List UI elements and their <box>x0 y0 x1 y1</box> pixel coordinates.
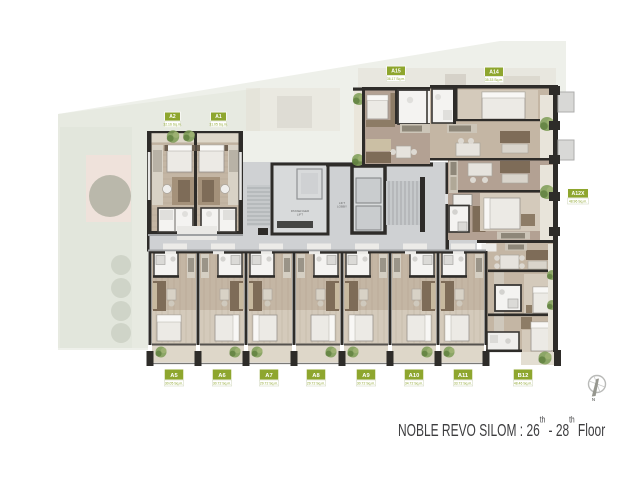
svg-text:N: N <box>592 397 596 403</box>
svg-text:LIFT: LIFT <box>297 213 303 217</box>
svg-text:36.17 Sq.m.: 36.17 Sq.m. <box>387 77 405 81</box>
svg-text:A7: A7 <box>265 373 272 379</box>
svg-text:A9: A9 <box>362 373 370 379</box>
svg-text:A11: A11 <box>458 373 469 379</box>
svg-text:29.72 Sq.m.: 29.72 Sq.m. <box>260 382 278 386</box>
svg-text:48.96 Sq.m.: 48.96 Sq.m. <box>569 200 587 204</box>
svg-text:30.72 Sq.m.: 30.72 Sq.m. <box>357 382 375 386</box>
svg-text:LOBBY: LOBBY <box>337 205 347 209</box>
svg-text:33.72 Sq.m.: 33.72 Sq.m. <box>454 382 472 386</box>
svg-text:NOBLE REVO SILOM : 26th - 28th: NOBLE REVO SILOM : 26th - 28th Floor <box>398 415 605 441</box>
svg-text:A15: A15 <box>391 69 401 75</box>
svg-text:34.72 Sq.m.: 34.72 Sq.m. <box>405 382 423 386</box>
svg-text:32.16 Sq.m.: 32.16 Sq.m. <box>163 123 181 127</box>
svg-text:A12X: A12X <box>572 191 586 197</box>
svg-text:A2: A2 <box>169 114 176 120</box>
svg-text:29.72 Sq.m.: 29.72 Sq.m. <box>307 382 325 386</box>
svg-text:A14: A14 <box>489 70 499 76</box>
svg-text:A8: A8 <box>312 373 320 379</box>
svg-text:A5: A5 <box>170 373 178 379</box>
svg-text:48.46 Sq.m.: 48.46 Sq.m. <box>514 382 532 386</box>
svg-text:A1: A1 <box>215 114 222 120</box>
svg-text:A6: A6 <box>218 373 226 379</box>
svg-text:B12: B12 <box>518 373 529 379</box>
svg-text:30.72 Sq.m.: 30.72 Sq.m. <box>213 382 231 386</box>
svg-text:A10: A10 <box>409 373 420 379</box>
svg-text:35.33 Sq.m.: 35.33 Sq.m. <box>485 78 503 82</box>
svg-text:31.05 Sq.m.: 31.05 Sq.m. <box>209 123 227 127</box>
svg-text:30.05 Sq.m.: 30.05 Sq.m. <box>165 382 183 386</box>
